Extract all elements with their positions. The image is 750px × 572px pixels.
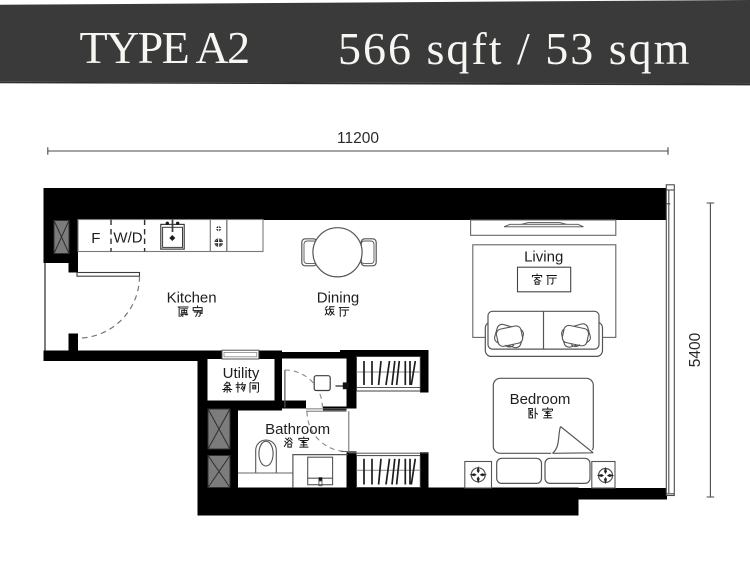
svg-text:TYPE A2: TYPE A2 [80,22,249,73]
svg-text:Dining: Dining [317,289,360,306]
svg-text:Bedroom: Bedroom [510,391,571,408]
svg-text:Living: Living [524,248,563,265]
svg-text:566 sqft / 53 sqm: 566 sqft / 53 sqm [338,23,691,74]
svg-text:Kitchen: Kitchen [167,289,217,306]
svg-text:11200: 11200 [337,130,379,147]
svg-text:Utility: Utility [223,365,260,382]
svg-text:F: F [91,230,100,247]
svg-text:Bathroom: Bathroom [265,421,330,438]
svg-text:W/D: W/D [113,230,142,247]
svg-text:5400: 5400 [687,332,704,367]
